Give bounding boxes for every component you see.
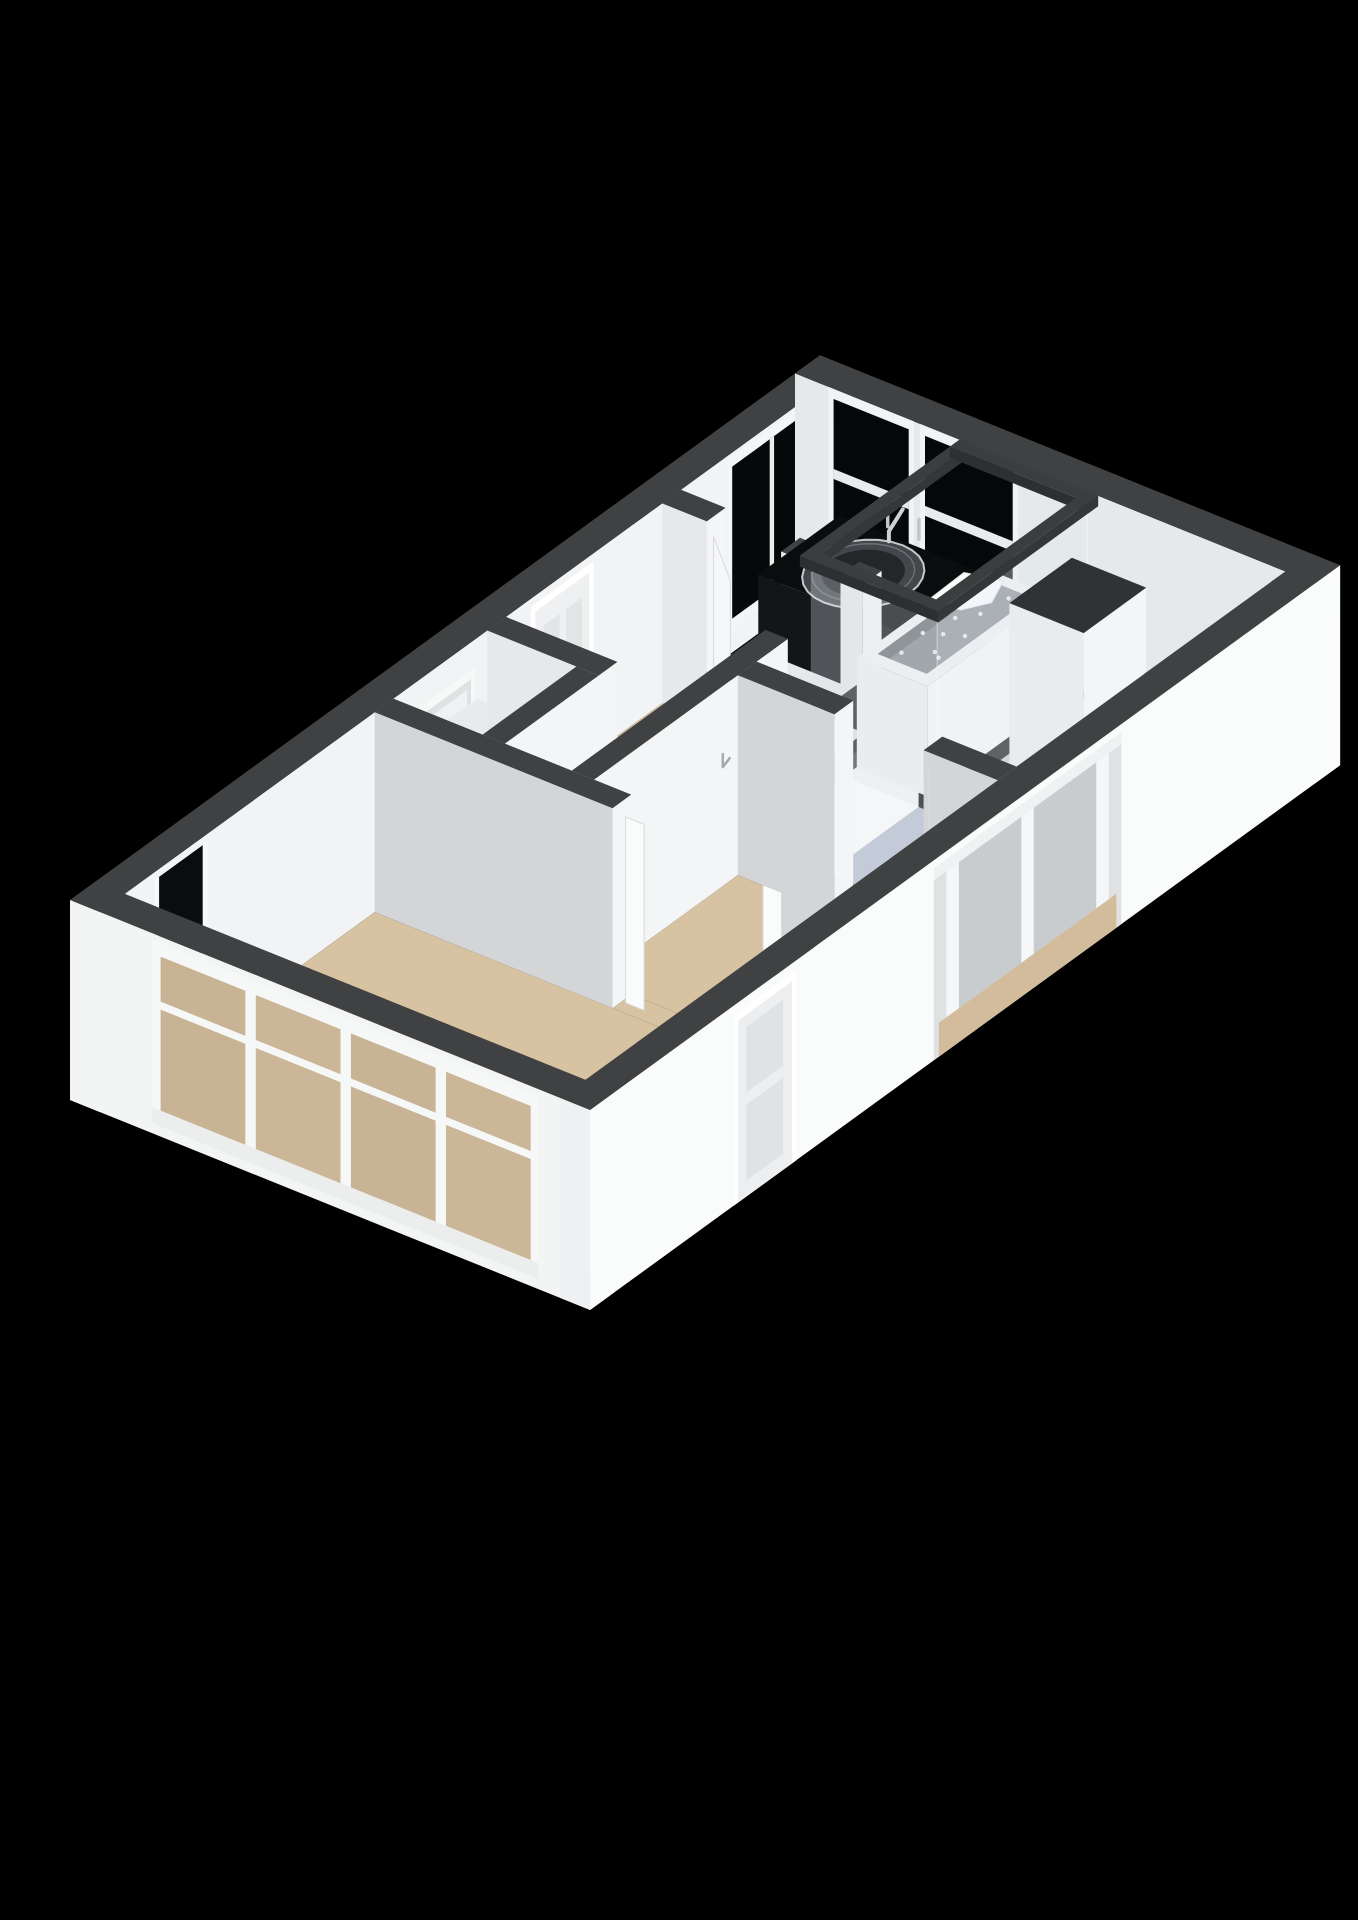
se-exterior-wall-face-x — [560, 1098, 590, 1310]
floorplan-canvas: 3D isometric dollhouse-style floor plan … — [0, 0, 1358, 1920]
se-porch-frame-right — [1096, 753, 1109, 908]
se-porch-frame-left — [946, 862, 959, 1017]
wall-bedroom-east-upper-face-x — [738, 675, 835, 914]
pocket-door-1 — [626, 817, 645, 1011]
floorplan-3d-render — [0, 0, 1358, 1920]
wall-bedroom-east-upper-face-y — [834, 701, 853, 915]
se-porch-frame-mid — [1021, 808, 1033, 963]
